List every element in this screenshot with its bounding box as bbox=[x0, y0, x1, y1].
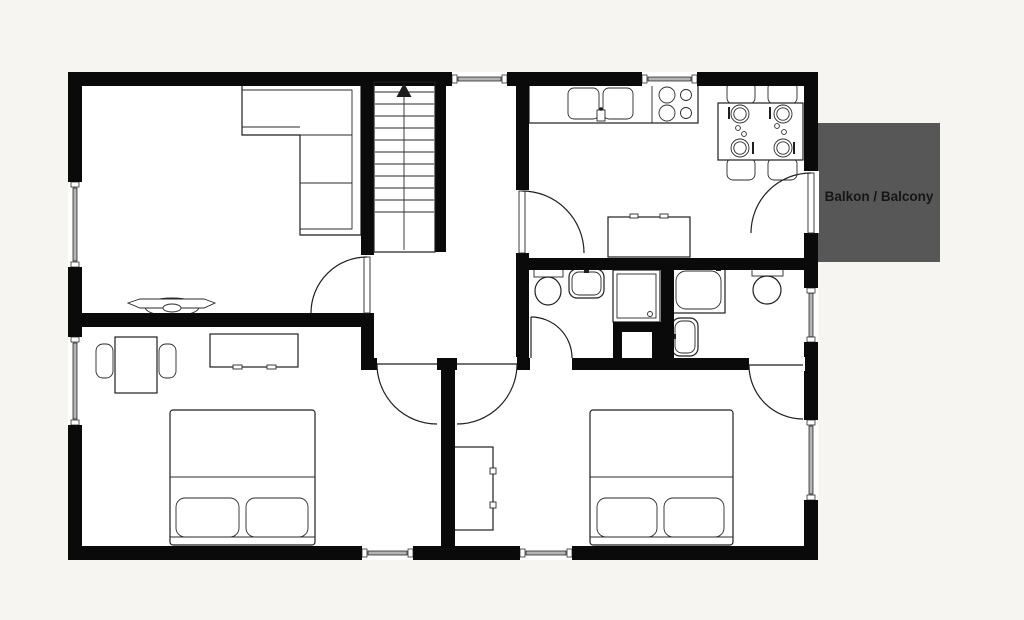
washbasin-icon bbox=[671, 318, 698, 356]
balcony: Balkon / Balcony bbox=[818, 123, 940, 262]
floor-plan-drawing: Balkon / Balcony bbox=[0, 0, 1024, 620]
balcony-label: Balkon / Balcony bbox=[825, 189, 934, 204]
window-icon bbox=[362, 546, 413, 560]
pillow-icon bbox=[246, 498, 308, 537]
wall-bedroom-divider bbox=[441, 358, 455, 560]
window-icon bbox=[68, 337, 82, 425]
window-icon bbox=[804, 420, 818, 500]
desk-icon bbox=[115, 337, 157, 393]
bathtub-icon bbox=[672, 267, 725, 313]
duct-shaft-opening bbox=[622, 332, 652, 358]
wall-stairs-right bbox=[435, 82, 446, 252]
dining-chair-icon bbox=[768, 158, 797, 180]
pillow-icon bbox=[664, 498, 724, 537]
window-icon bbox=[642, 72, 697, 86]
toilet-icon bbox=[752, 268, 783, 304]
double-bed-icon bbox=[170, 410, 315, 545]
wall-living-bedroom1 bbox=[68, 313, 374, 327]
window-icon bbox=[520, 546, 572, 560]
double-bed-icon bbox=[590, 410, 733, 545]
floor-plan-page: Balkon / Balcony bbox=[0, 0, 1024, 620]
sideboard-icon bbox=[210, 334, 298, 369]
kitchen-island-icon bbox=[608, 214, 690, 257]
pillow-icon bbox=[597, 498, 657, 537]
washbasin-icon bbox=[569, 268, 604, 298]
window-icon bbox=[68, 182, 82, 267]
pillow-icon bbox=[176, 498, 239, 537]
toilet-icon bbox=[534, 269, 563, 305]
window-icon bbox=[452, 72, 507, 86]
wall-living-hall bbox=[361, 82, 374, 370]
wardrobe-icon bbox=[454, 447, 496, 530]
kitchen-counter-icon bbox=[529, 84, 698, 123]
window-icon bbox=[804, 288, 818, 342]
shower-tray-icon bbox=[613, 270, 660, 322]
dining-chair-icon bbox=[727, 158, 755, 180]
wall-bathroom-divider bbox=[661, 258, 674, 370]
